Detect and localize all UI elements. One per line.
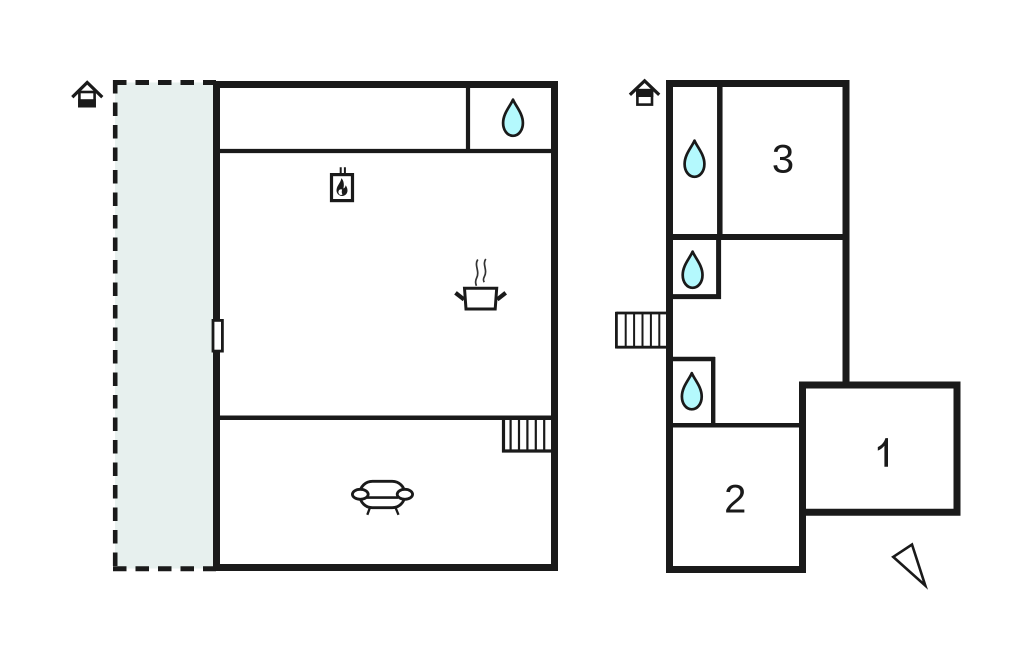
svg-text:3: 3 (772, 138, 794, 182)
svg-text:2: 2 (724, 477, 746, 521)
